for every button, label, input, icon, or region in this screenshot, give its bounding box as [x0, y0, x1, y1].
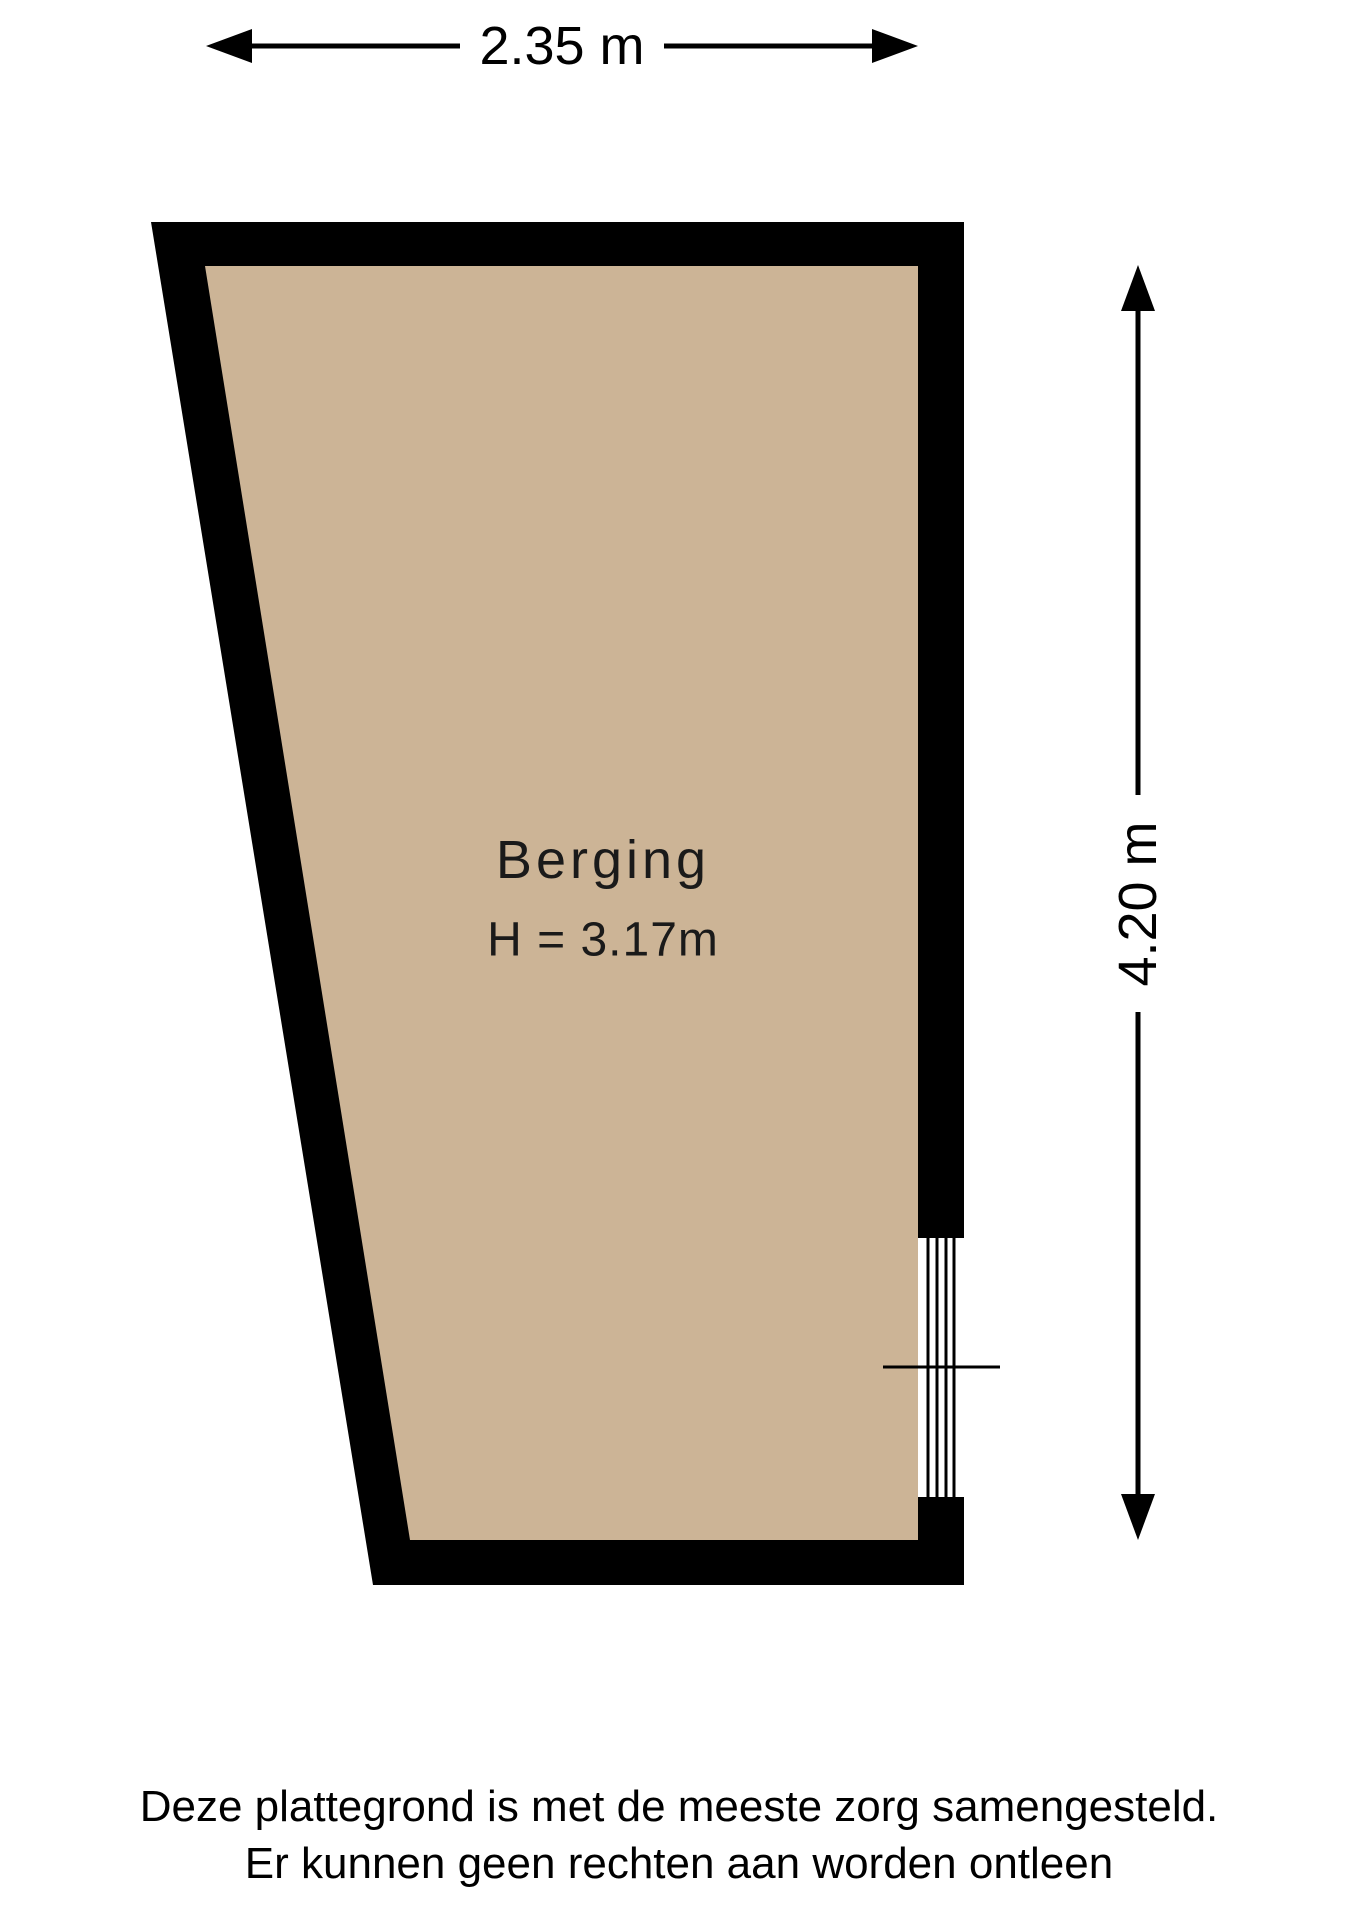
floor-plan-page: 2.35 m 4.20 m Berging H = 3.17m Deze pla… — [0, 0, 1358, 1920]
room-floor — [205, 266, 918, 1540]
disclaimer-line-1: Deze plattegrond is met de meeste zorg s… — [0, 1778, 1358, 1835]
depth-dimension: 4.20 m — [1108, 265, 1168, 1540]
room-height-label: H = 3.17m — [487, 914, 719, 967]
arrow-up-icon — [1121, 265, 1155, 311]
width-dimension-label: 2.35 m — [479, 16, 644, 76]
arrow-down-icon — [1121, 1494, 1155, 1540]
depth-dimension-label: 4.20 m — [1108, 821, 1168, 986]
room-name-label: Berging — [496, 830, 710, 890]
disclaimer: Deze plattegrond is met de meeste zorg s… — [0, 1778, 1358, 1892]
floor-plan-drawing: 2.35 m 4.20 m Berging H = 3.17m — [0, 0, 1358, 1920]
arrow-right-icon — [872, 29, 918, 63]
disclaimer-line-2: Er kunnen geen rechten aan worden ontlee… — [0, 1835, 1358, 1892]
width-dimension: 2.35 m — [206, 16, 918, 76]
arrow-left-icon — [206, 29, 252, 63]
